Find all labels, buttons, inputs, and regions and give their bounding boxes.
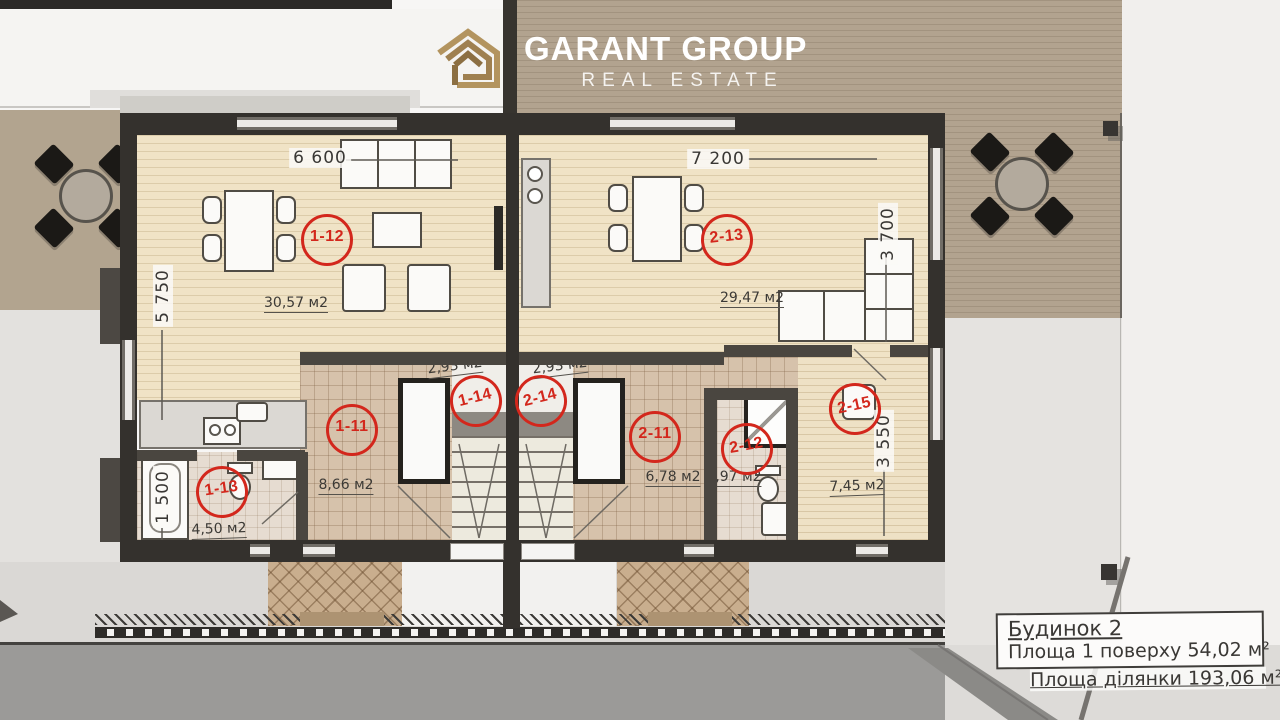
dimension-right-unit-width: 7 200 [687, 149, 749, 169]
room-label-1-12: 1-12 [301, 214, 353, 266]
dimension-right-unit-depth: 3 700 [878, 203, 898, 265]
info-building-name: Будинок 2 [1008, 616, 1252, 642]
info-floor-area: Площа 1 поверху 54,02 м² [1008, 639, 1252, 665]
room-label-2-11: 2-11 [629, 411, 681, 463]
dimension-left-unit-width: 6 600 [289, 148, 351, 168]
dimension-left-unit-depth: 5 750 [153, 265, 173, 327]
room-label-1-11: 1-11 [326, 404, 378, 456]
logo: GARANT GROUP REAL ESTATE [425, 14, 825, 104]
info-plot-area: Площа ділянки 193,06 м² [1030, 667, 1266, 691]
logo-title: GARANT GROUP [524, 30, 807, 68]
info-box: Будинок 2 Площа 1 поверху 54,02 м² [996, 611, 1265, 670]
dimension-left-bath-width: 1 500 [153, 466, 173, 528]
floor-plan-canvas: 6 600 7 200 5 750 1 500 3 700 3 550 30,5… [0, 0, 1280, 720]
logo-house-icon [430, 20, 506, 96]
logo-tagline: REAL ESTATE [560, 70, 805, 92]
